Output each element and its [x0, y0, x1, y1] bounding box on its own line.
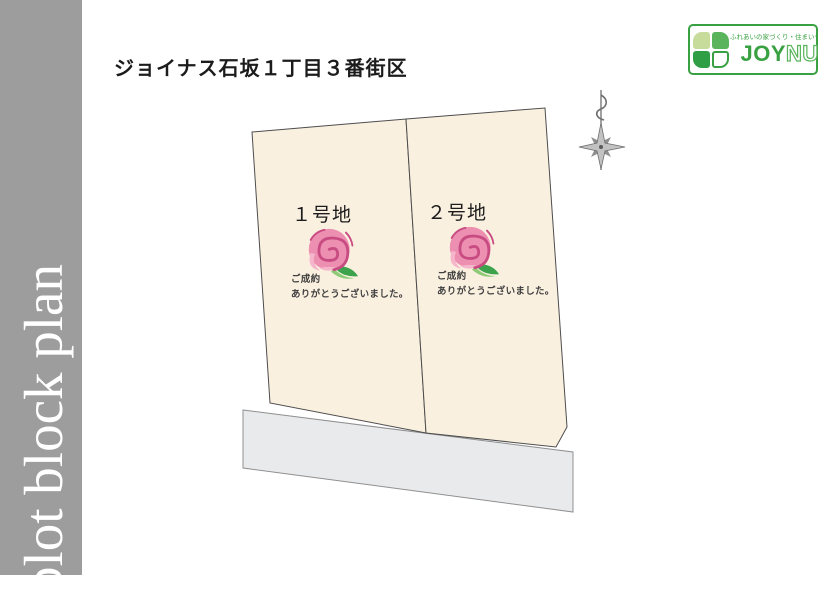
plot-2-label: ２号地: [427, 198, 487, 225]
plot-1-label: １号地: [292, 200, 352, 227]
plot-1-sold-note: ご成約 ありがとうございました。: [291, 272, 409, 302]
site-plan-drawing: [0, 0, 818, 596]
plot-1-sold-line2: ありがとうございました。: [291, 287, 409, 302]
plot-block-plan-page: plot block plan ジョイナス石坂１丁目３番街区 ふれあいの家づくり…: [0, 0, 818, 596]
north-compass-icon: [579, 90, 625, 170]
plot-2-sold-line2: ありがとうございました。: [437, 284, 555, 299]
plot-2-sold-line1: ご成約: [437, 269, 555, 284]
plot-1-sold-line1: ご成約: [291, 272, 409, 287]
plot-2-sold-note: ご成約 ありがとうございました。: [437, 269, 555, 299]
